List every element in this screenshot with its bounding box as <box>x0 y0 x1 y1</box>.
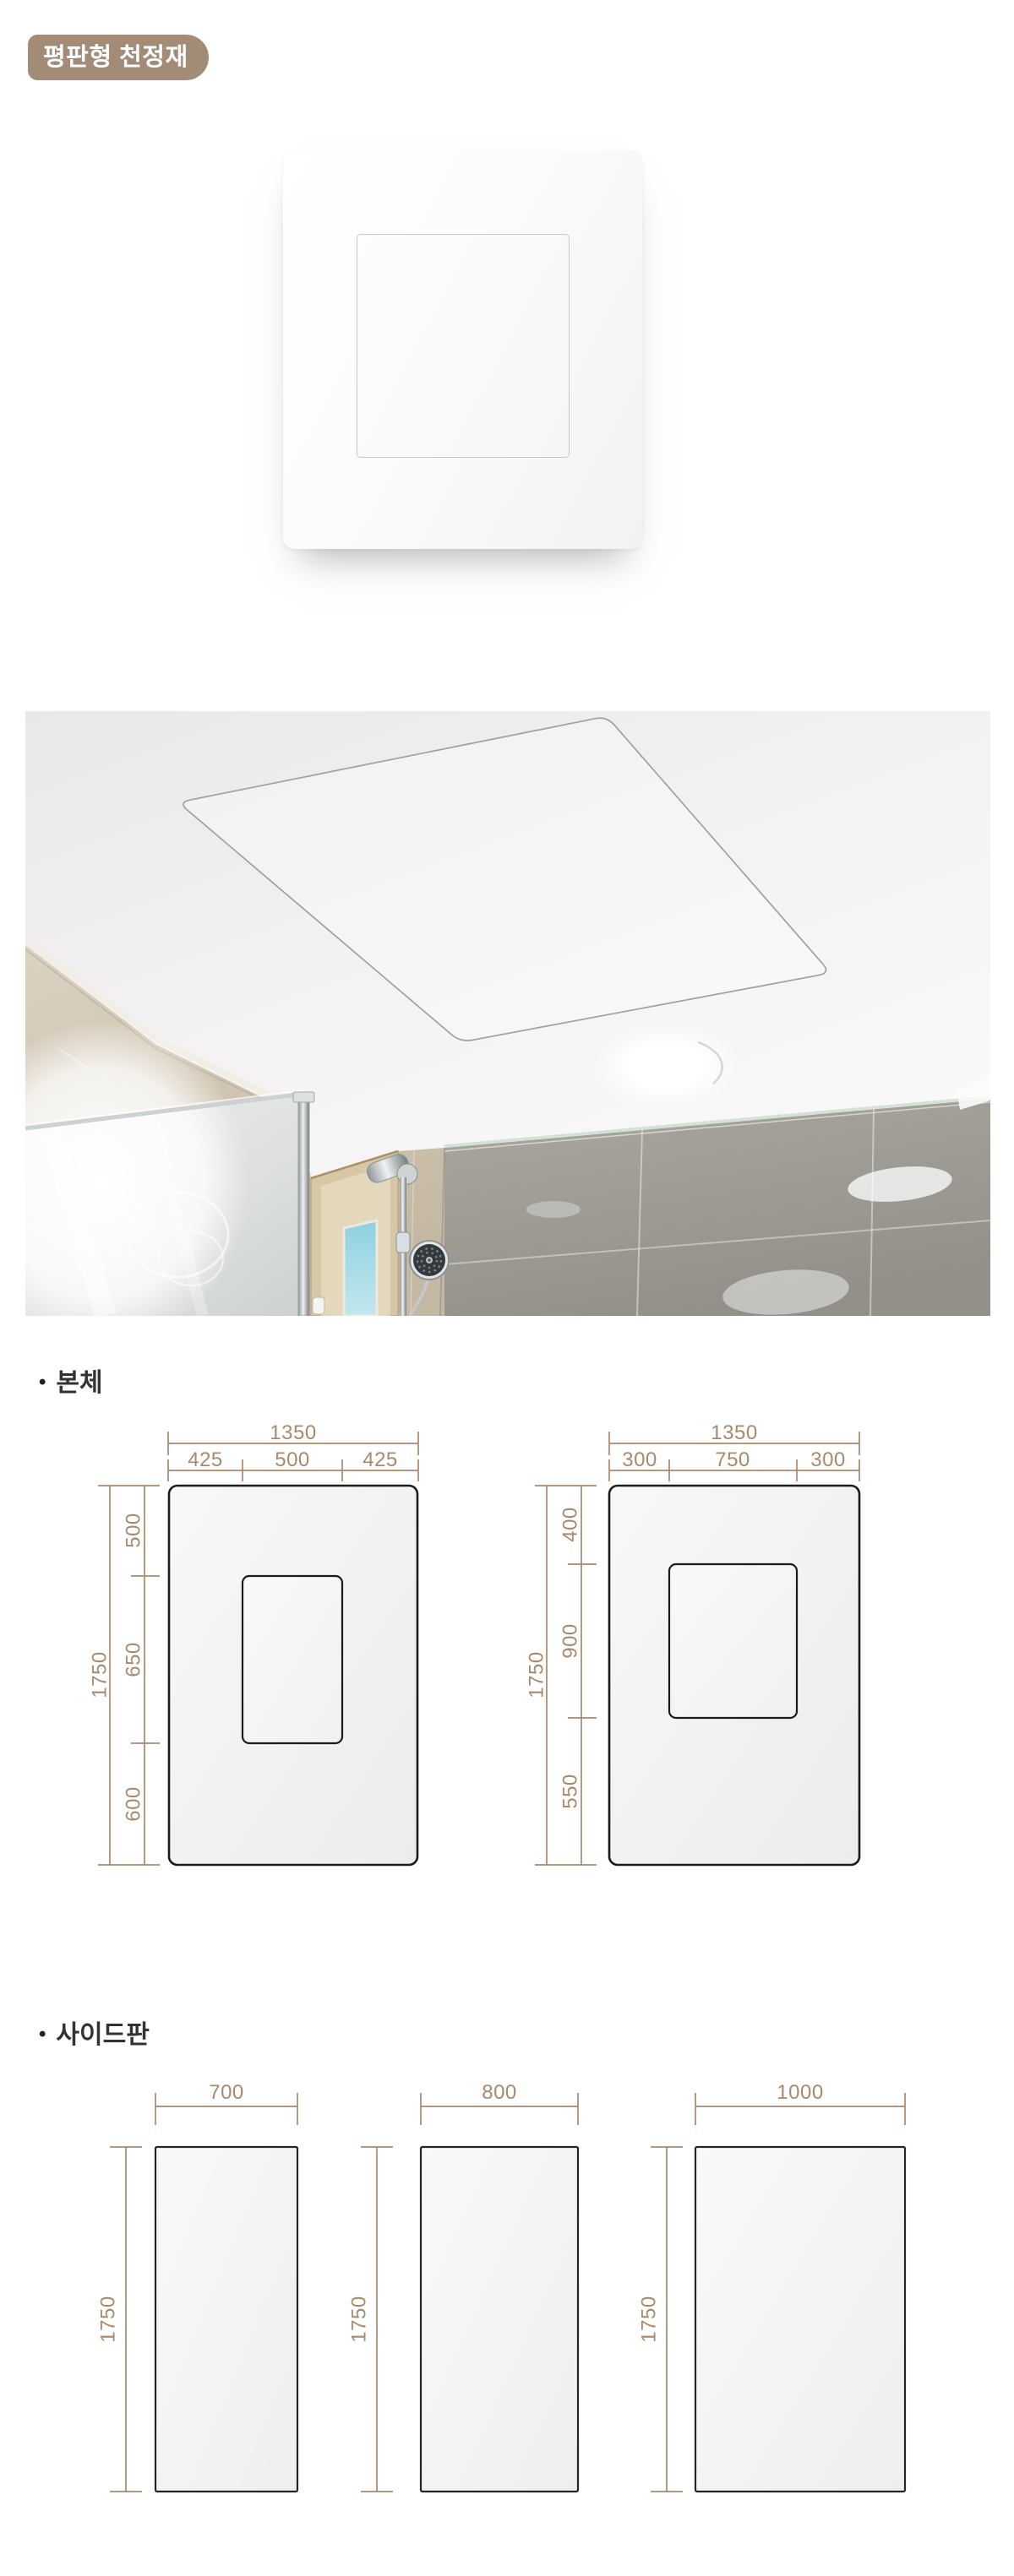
diagram-body-panel-2: 1350 300 750 300 1750 400 900 550 <box>515 1419 887 1875</box>
page: 평판형 천정재 <box>0 0 1014 2576</box>
dim-seg: 650 <box>122 1642 144 1677</box>
diagram-body-panel-1: 1350 425 500 425 1750 500 650 600 <box>84 1419 431 1875</box>
dim-overall-height: 1750 <box>525 1651 548 1698</box>
side-panel-800: 800 1750 <box>347 2081 578 2492</box>
dim-width: 800 <box>482 2081 517 2104</box>
dim-seg: 400 <box>559 1507 581 1542</box>
dim-seg: 300 <box>810 1448 846 1471</box>
bullet: • <box>39 1371 46 1394</box>
access-opening-outline <box>669 1564 797 1718</box>
bullet: • <box>39 2023 46 2046</box>
dim-seg: 425 <box>363 1448 398 1471</box>
side-panel-outline <box>155 2147 297 2492</box>
dim-height: 1750 <box>96 2296 119 2342</box>
heading-body-label: 본체 <box>56 1369 102 1397</box>
section-title-badge: 평판형 천정재 <box>28 35 209 80</box>
heading-side-label: 사이드판 <box>56 2021 149 2049</box>
dim-seg: 750 <box>715 1448 750 1471</box>
shower-head <box>410 1241 449 1280</box>
door-handle <box>313 1297 324 1314</box>
dim-height: 1750 <box>347 2296 370 2342</box>
glass-frame-post <box>298 1094 309 1316</box>
product-photo-ceiling-panel <box>283 150 642 549</box>
dim-seg: 425 <box>188 1448 223 1471</box>
dim-height: 1750 <box>637 2296 660 2342</box>
dim-overall-width: 1350 <box>711 1421 757 1444</box>
bathroom-installation-photo <box>25 711 990 1316</box>
ceiling-downlight <box>591 1020 740 1111</box>
dim-seg: 550 <box>559 1774 581 1809</box>
dim-seg: 600 <box>122 1786 144 1822</box>
dim-overall-height: 1750 <box>88 1651 111 1698</box>
side-panel-700: 700 1750 <box>96 2081 297 2492</box>
dim-overall-width: 1350 <box>270 1421 316 1444</box>
dim-seg: 900 <box>559 1623 581 1659</box>
door-glass <box>344 1220 377 1316</box>
access-door-outline <box>357 234 570 458</box>
dim-width: 1000 <box>777 2081 823 2104</box>
dim-width: 700 <box>209 2081 244 2104</box>
dim-seg: 500 <box>122 1513 144 1548</box>
side-panel-outline <box>695 2147 905 2492</box>
access-opening-outline <box>243 1576 342 1743</box>
dim-seg: 300 <box>622 1448 657 1471</box>
dim-seg: 500 <box>275 1448 310 1471</box>
side-panel-1000: 1000 1750 <box>637 2081 905 2492</box>
heading-side: •사이드판 <box>39 2014 150 2051</box>
diagram-side-panels: 700 1750 800 1750 1000 <box>84 2069 929 2508</box>
side-panel-outline <box>421 2147 578 2492</box>
heading-body: •본체 <box>39 1361 103 1399</box>
